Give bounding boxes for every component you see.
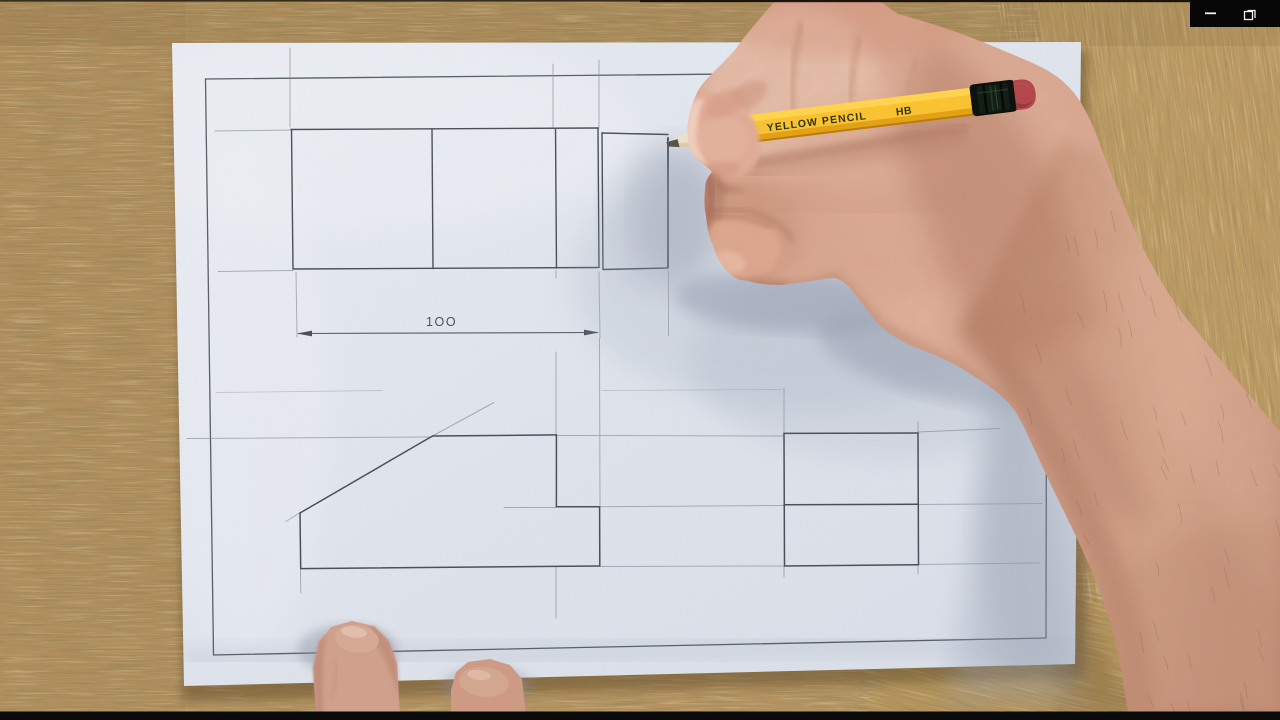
svg-text:1OO: 1OO: [426, 315, 457, 329]
svg-text:HB: HB: [895, 105, 913, 119]
